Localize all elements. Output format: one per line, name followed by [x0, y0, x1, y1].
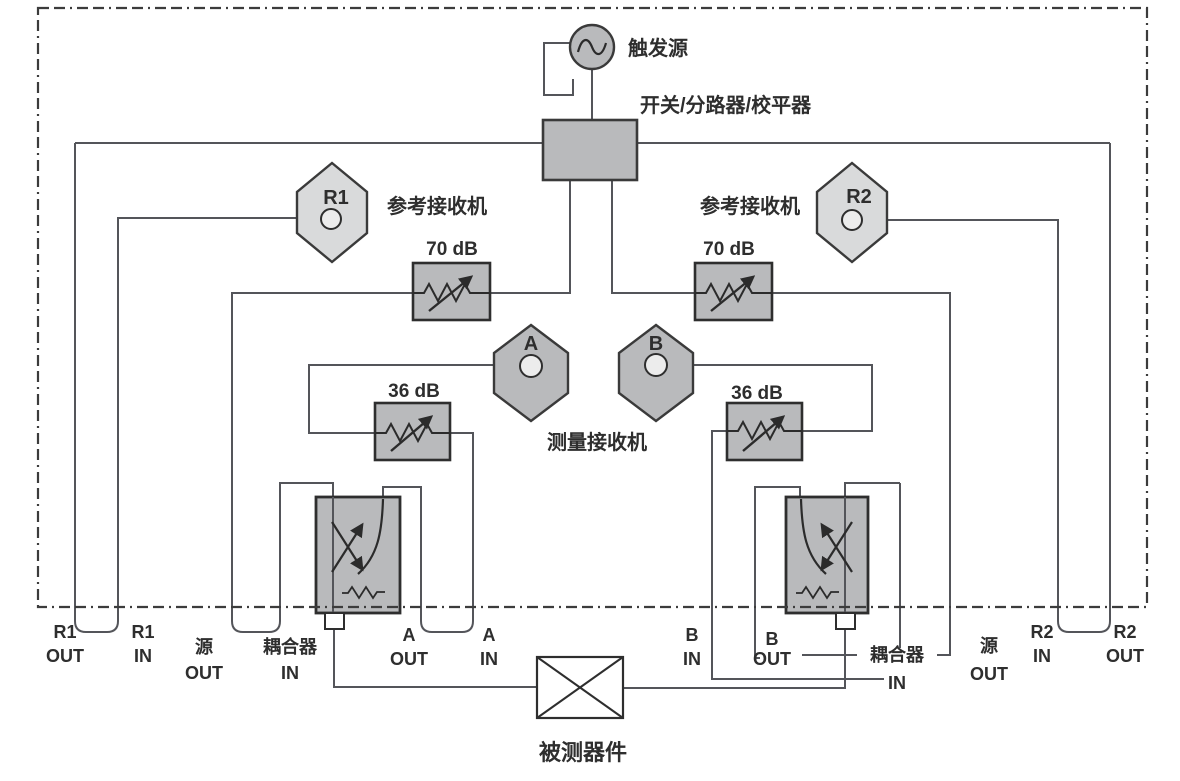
r2-port-dot: [842, 210, 862, 230]
port-text: R2: [1030, 622, 1053, 642]
attenuator-70db-left: [413, 263, 490, 320]
coupler-block-left: [316, 497, 400, 629]
attenuator-36db-left: [375, 403, 450, 460]
port-text: 耦合器: [263, 636, 318, 657]
port-text: 源: [980, 635, 998, 656]
att70-right-label: 70 dB: [703, 239, 755, 260]
r2-letter: R2: [846, 186, 872, 208]
port-text: OUT: [753, 649, 791, 669]
coupler-block-right: [786, 497, 868, 629]
a-letter: A: [524, 333, 538, 355]
port-text: 耦合器: [870, 644, 925, 665]
port-text: IN: [281, 663, 299, 683]
attenuator-36db-right: [727, 403, 802, 460]
attenuator-70db-right: [695, 263, 772, 320]
port-text: IN: [888, 673, 906, 693]
att70-left-label: 70 dB: [426, 239, 478, 260]
diagram-canvas: 触发源 开关/分路器/校平器 参考接收机 参考接收机 70 dB 70 dB 3…: [0, 0, 1180, 781]
port-text: IN: [683, 649, 701, 669]
block-diagram-network-analyzer: 触发源 开关/分路器/校平器 参考接收机 参考接收机 70 dB 70 dB 3…: [0, 0, 1180, 781]
switch-splitter-box: [543, 120, 637, 180]
port-text: OUT: [970, 664, 1008, 684]
port-text: A: [483, 625, 496, 645]
dut-symbol: [537, 657, 623, 718]
port-text: OUT: [46, 646, 84, 666]
r1-letter: R1: [323, 187, 349, 209]
port-text: R1: [53, 622, 76, 642]
att36-right-label: 36 dB: [731, 383, 783, 404]
meas-receiver-label: 测量接收机: [547, 430, 647, 454]
ref-receiver-left-label: 参考接收机: [387, 194, 487, 218]
att36-left-label: 36 dB: [388, 381, 440, 402]
port-text: IN: [480, 649, 498, 669]
coupler-box: [786, 497, 868, 613]
port-text: B: [766, 629, 779, 649]
dut-label: 被测器件: [539, 740, 627, 765]
b-letter: B: [649, 333, 663, 355]
test-port-connector-1: [325, 613, 344, 629]
b-port-dot: [645, 354, 667, 376]
port-text: OUT: [390, 649, 428, 669]
port-text: A: [403, 625, 416, 645]
r1-port-dot: [321, 209, 341, 229]
port-text: OUT: [185, 663, 223, 683]
port-text: R1: [131, 622, 154, 642]
port-text: IN: [1033, 646, 1051, 666]
trigger-source-symbol: [570, 25, 614, 69]
test-port-connector-2: [836, 613, 855, 629]
trigger-source-label: 触发源: [628, 36, 688, 60]
switch-splitter-label: 开关/分路器/校平器: [640, 93, 812, 117]
port-text: R2: [1113, 622, 1136, 642]
port-text: OUT: [1106, 646, 1144, 666]
port-text: IN: [134, 646, 152, 666]
port-text: B: [686, 625, 699, 645]
a-port-dot: [520, 355, 542, 377]
port-text: 源: [195, 636, 213, 657]
ref-receiver-right-label: 参考接收机: [700, 194, 800, 218]
